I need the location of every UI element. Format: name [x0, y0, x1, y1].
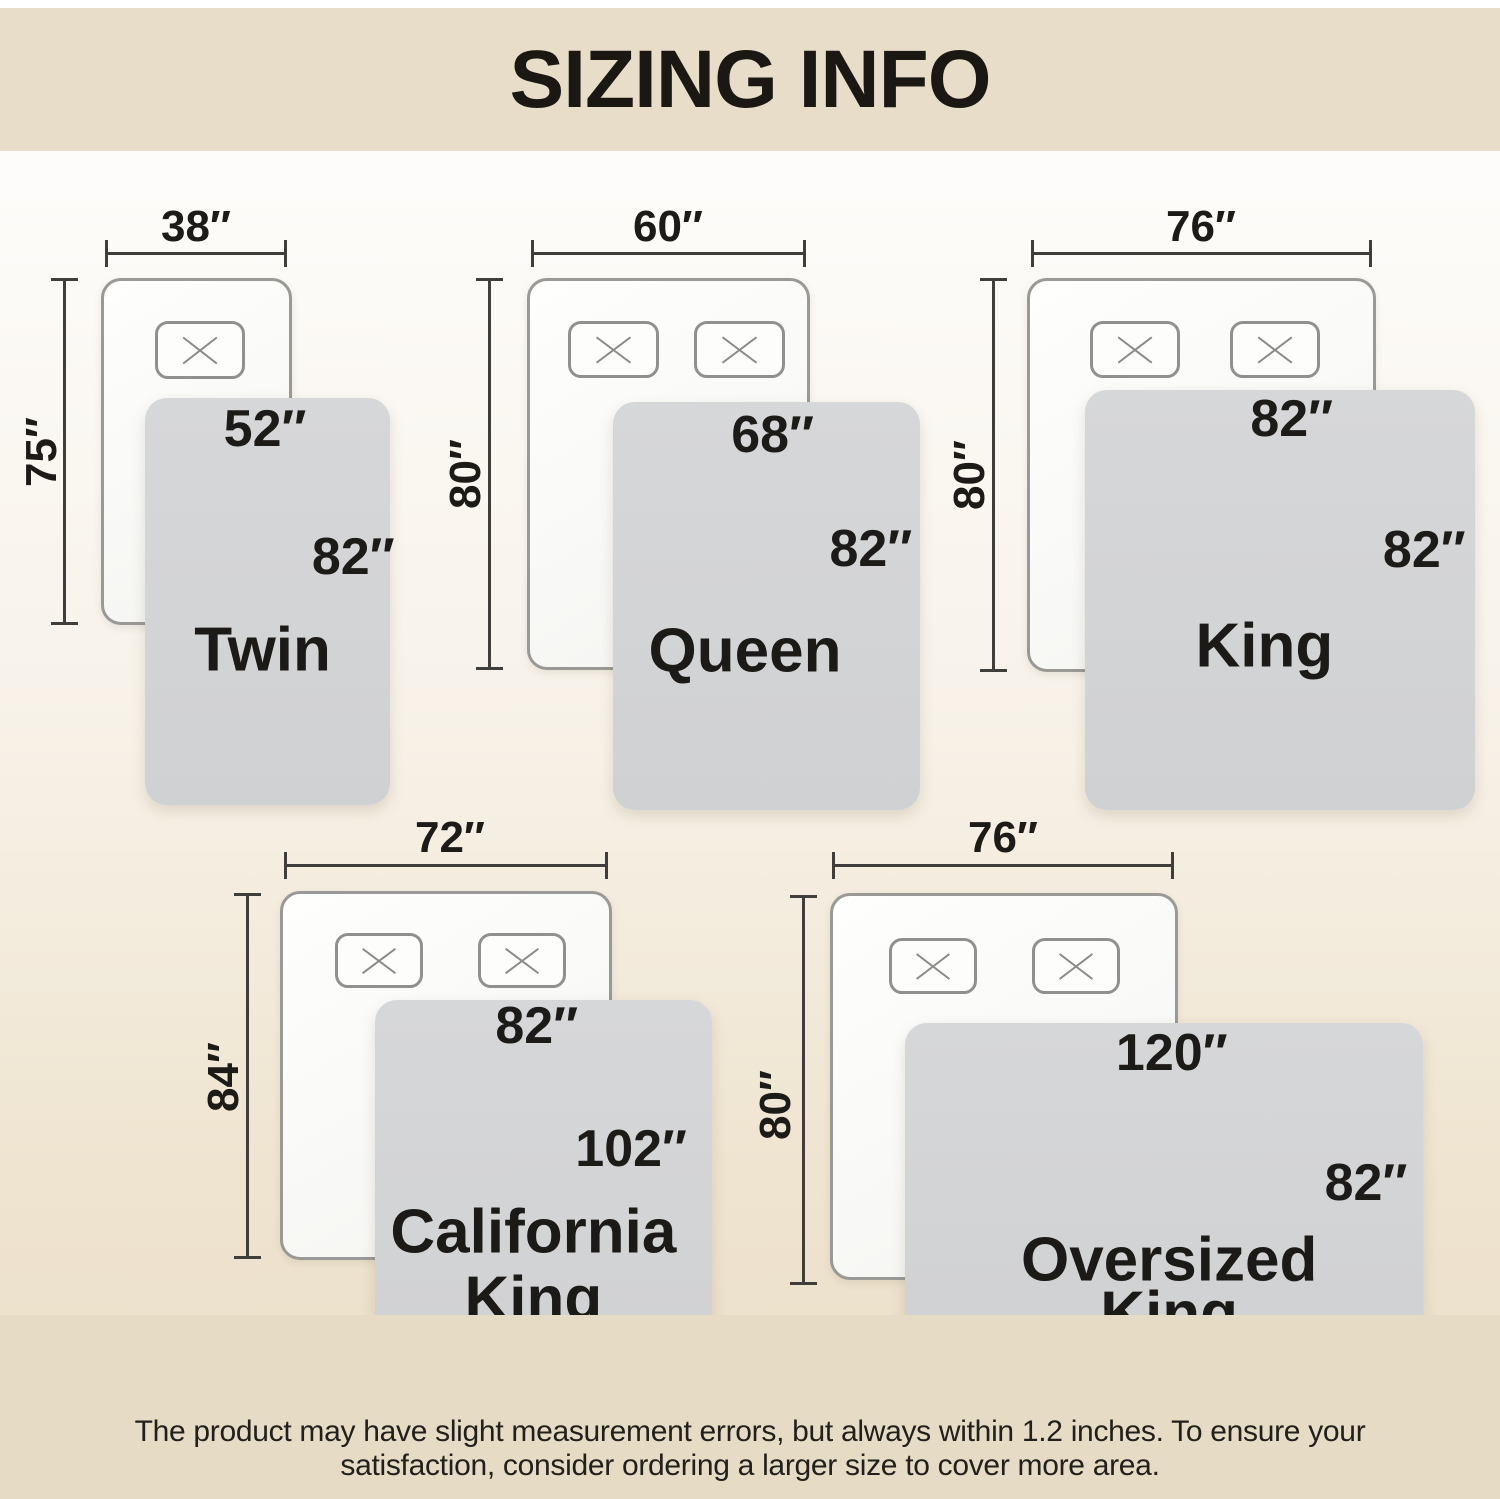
twin-mattress-length-label: 75″	[17, 417, 67, 487]
x-icon	[892, 941, 974, 991]
pillow-icon	[335, 933, 423, 988]
queen-width-dimension-line	[531, 252, 806, 255]
oversized-king-blanket: 120″ 82″ Oversized King	[905, 1023, 1423, 1357]
x-icon	[1093, 324, 1177, 375]
california-king-blanket-length-label: 102″	[575, 1119, 687, 1179]
queen-blanket-length-label: 82″	[830, 519, 913, 579]
california-king-mattress-width-label: 72″	[415, 813, 485, 863]
king-name-label: King	[1196, 611, 1334, 682]
queen-mattress-width-label: 60″	[633, 202, 703, 252]
pillow-icon	[1090, 321, 1180, 378]
california-king-width-dimension-line	[284, 864, 608, 867]
california-king-blanket-width-label: 82″	[495, 996, 578, 1056]
king-blanket: 82″ 82″ King	[1085, 390, 1475, 810]
x-icon	[338, 936, 420, 985]
king-width-dimension-line	[1031, 252, 1372, 255]
pillow-icon	[568, 321, 659, 378]
header-banner: SIZING INFO	[0, 8, 1500, 151]
disclaimer-line-2: satisfaction, consider ordering a larger…	[0, 1449, 1500, 1483]
pillow-icon	[1032, 938, 1120, 994]
disclaimer-line-1: The product may have slight measurement …	[0, 1415, 1500, 1449]
queen-blanket-width-label: 68″	[731, 405, 814, 465]
pillow-icon	[1230, 321, 1320, 378]
oversized-king-mattress-width-label: 76″	[968, 813, 1038, 863]
disclaimer-text: The product may have slight measurement …	[0, 1415, 1500, 1483]
twin-blanket-length-label: 82″	[312, 527, 395, 587]
pillow-icon	[694, 321, 785, 378]
x-icon	[1035, 941, 1117, 991]
oversized-king-length-dimension-line	[802, 895, 805, 1285]
king-blanket-length-label: 82″	[1383, 520, 1466, 580]
pillow-icon	[478, 933, 566, 988]
queen-blanket: 68″ 82″ Queen	[613, 402, 920, 810]
twin-width-dimension-line	[105, 252, 287, 255]
king-mattress-length-label: 80″	[945, 440, 995, 510]
twin-name-label: Twin	[194, 615, 331, 686]
pillow-icon	[155, 321, 245, 379]
twin-blanket: 52″ 82″ Twin	[145, 398, 390, 805]
oversized-king-width-dimension-line	[832, 864, 1174, 867]
oversized-king-blanket-width-label: 120″	[1116, 1023, 1228, 1083]
queen-name-label: Queen	[649, 615, 842, 686]
x-icon	[697, 324, 782, 375]
x-icon	[158, 324, 242, 376]
queen-mattress-length-label: 80″	[441, 439, 491, 509]
king-mattress-width-label: 76″	[1166, 202, 1236, 252]
oversized-king-mattress-length-label: 80″	[751, 1070, 801, 1140]
twin-mattress-width-label: 38″	[161, 202, 231, 252]
x-icon	[481, 936, 563, 985]
california-king-mattress-length-label: 84″	[199, 1042, 249, 1112]
oversized-king-blanket-length-label: 82″	[1325, 1153, 1408, 1213]
twin-blanket-width-label: 52″	[224, 399, 307, 459]
pillow-icon	[889, 938, 977, 994]
california-king-name-label-line1: California	[390, 1196, 676, 1267]
footer-disclaimer: The product may have slight measurement …	[0, 1315, 1500, 1499]
king-blanket-width-label: 82″	[1250, 389, 1333, 449]
x-icon	[1233, 324, 1317, 375]
x-icon	[571, 324, 656, 375]
page-title: SIZING INFO	[510, 33, 991, 127]
sizing-info-page: SIZING INFO 38″ 75″ 52″ 82″ Twin 60″ 80″	[0, 0, 1500, 1499]
